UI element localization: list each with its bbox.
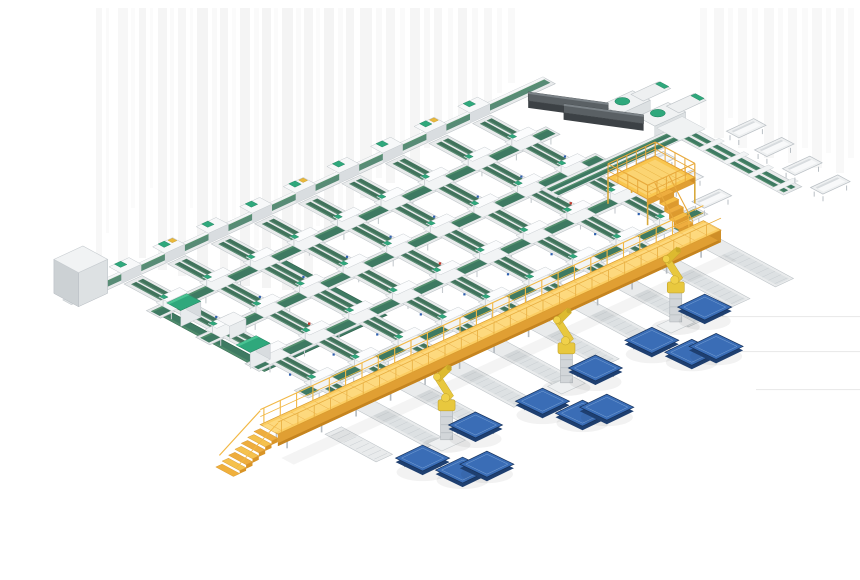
- factory-render: [0, 0, 860, 580]
- scene-svg: [0, 0, 860, 580]
- pallet: [580, 394, 634, 426]
- pallet: [689, 333, 743, 365]
- gray-cabinet: [54, 246, 108, 307]
- pallet: [460, 451, 514, 483]
- chute-bin: [811, 175, 851, 201]
